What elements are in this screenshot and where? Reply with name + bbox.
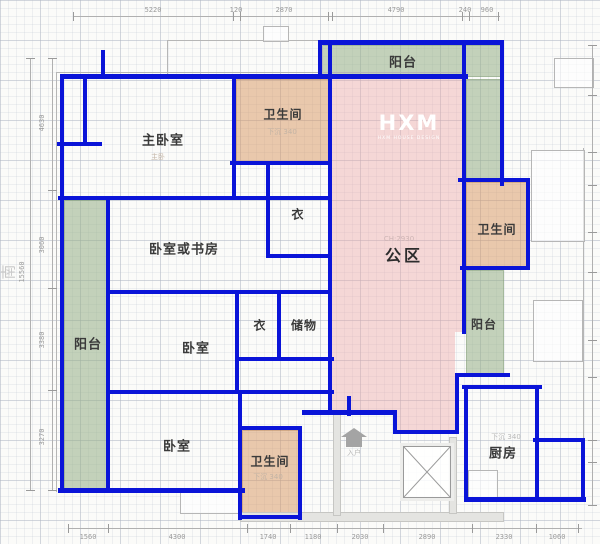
entry-house-icon <box>341 428 367 447</box>
dim-label-left: 4630 <box>38 115 46 132</box>
dimension-line-bottom <box>68 528 582 529</box>
wall-segment <box>462 44 466 334</box>
wall-outline <box>322 40 323 74</box>
dim-label-top: 240 <box>459 6 472 14</box>
dim-tick <box>588 185 597 186</box>
dim-tick <box>26 58 35 59</box>
dim-tick <box>68 524 69 533</box>
dim-label-left: 3270 <box>38 429 46 446</box>
dim-tick <box>383 524 384 533</box>
room-label-bedroom-middle: 卧室 <box>182 338 210 357</box>
wall-outline <box>167 40 323 41</box>
room-label-study: 卧室或书房 <box>149 239 219 258</box>
wall-segment <box>266 254 330 258</box>
room-label-balcony-left: 阳台 <box>74 334 102 353</box>
dim-tick <box>536 524 537 533</box>
dim-tick <box>588 272 597 273</box>
dim-label-left: 3060 <box>38 237 46 254</box>
wall-segment <box>455 373 459 434</box>
wall-segment <box>58 488 245 493</box>
wall-segment <box>298 426 302 520</box>
dim-label-left-total: 15560 <box>18 261 26 282</box>
dim-label-top: 2870 <box>276 6 293 14</box>
elevator-x-icon <box>404 447 450 497</box>
wall-segment <box>238 390 242 430</box>
wall-segment <box>500 40 504 186</box>
dim-label-left: 3380 <box>38 332 46 349</box>
dimension-line-left-total <box>30 58 31 490</box>
floor-plan-canvas: 主卧室 主卧 卫生间 下沉 340 衣 卧室或书房 阳台 卧室 衣 储物 卧室 … <box>0 0 600 544</box>
south-orientation-label: 南 <box>0 264 19 279</box>
dim-label-bottom: 1740 <box>260 533 277 541</box>
wall-segment <box>235 292 239 392</box>
wall-segment <box>106 196 110 492</box>
dim-label-bottom: 1060 <box>549 533 566 541</box>
wall-outline <box>167 40 168 74</box>
room-label-balcony-top: 阳台 <box>389 52 417 71</box>
wall-segment <box>106 390 334 394</box>
room-label-bath-bottom: 卫生间 <box>250 453 289 470</box>
room-sublabel-kitchen: 下沉 340 <box>491 432 521 442</box>
dim-label-top: 4790 <box>388 6 405 14</box>
dim-label-bottom: 2330 <box>496 533 513 541</box>
wall-segment <box>393 430 459 434</box>
room-label-public-area: 公区 <box>385 242 423 266</box>
watermark-logo: HXM HXM HOUSE DESIGN <box>378 113 440 141</box>
fixture-box <box>263 26 289 42</box>
wall-segment <box>60 74 468 79</box>
dim-tick <box>498 12 499 21</box>
dimension-line-right <box>592 45 593 505</box>
dim-tick <box>247 524 248 533</box>
dim-tick <box>328 12 329 21</box>
wall-segment <box>456 373 510 377</box>
wall-segment <box>58 196 332 200</box>
room-label-bath-top: 卫生间 <box>263 106 302 123</box>
wall-segment <box>460 266 530 270</box>
room-sublabel-bath-bottom: 下沉 340 <box>253 472 283 482</box>
wall-segment <box>533 438 585 442</box>
wall-segment <box>238 426 242 520</box>
wall-segment <box>458 178 530 182</box>
dim-label-bottom: 2890 <box>419 533 436 541</box>
wall-segment <box>320 40 504 45</box>
wall-segment <box>464 497 586 502</box>
room-label-kitchen: 厨房 <box>489 443 517 462</box>
wall-segment <box>526 178 530 270</box>
wall-outline <box>56 72 468 73</box>
side-room <box>554 58 594 88</box>
dim-tick <box>290 524 291 533</box>
dim-tick <box>588 95 597 96</box>
dim-tick <box>108 524 109 533</box>
dim-label-bottom: 2030 <box>352 533 369 541</box>
room-label-bath-right: 卫生间 <box>477 221 516 238</box>
wall-segment <box>235 357 334 361</box>
dim-tick <box>48 390 57 391</box>
wall-segment <box>535 387 539 500</box>
dim-tick <box>48 490 57 491</box>
room-sublabel-bath-top: 下沉 340 <box>267 127 297 137</box>
dim-tick <box>588 232 597 233</box>
dimension-line-left <box>52 58 53 490</box>
wall-segment <box>318 40 322 78</box>
dim-tick <box>588 152 597 153</box>
room-green-strip-right[interactable] <box>466 79 502 181</box>
room-label-master-bedroom: 主卧室 <box>142 130 184 149</box>
dim-label-bottom: 1560 <box>80 533 97 541</box>
wall-outline <box>56 72 57 492</box>
dim-tick <box>588 340 597 341</box>
dim-tick <box>472 524 473 533</box>
room-label-balcony-right: 阳台 <box>471 316 497 333</box>
wall-segment <box>232 76 236 200</box>
wall-segment <box>83 76 87 146</box>
dim-tick <box>337 524 338 533</box>
wall-segment <box>238 515 302 519</box>
dim-tick <box>332 12 333 21</box>
dim-tick <box>73 12 74 21</box>
room-public-area-tail[interactable] <box>397 410 455 430</box>
entry-label: 入户 <box>347 448 361 458</box>
dim-tick <box>588 377 597 378</box>
dim-tick <box>48 190 57 191</box>
wall-segment <box>347 396 351 416</box>
dim-tick <box>588 462 597 463</box>
wall-segment <box>238 426 302 430</box>
room-label-storage: 储物 <box>291 317 317 334</box>
side-room <box>533 300 583 362</box>
kitchen-fixture <box>468 470 498 498</box>
dim-tick <box>26 490 35 491</box>
dim-tick <box>588 45 597 46</box>
room-sublabel-master-bedroom: 主卧 <box>151 152 165 162</box>
room-label-closet-upper: 衣 <box>291 206 304 223</box>
wall-segment <box>462 385 542 389</box>
dim-tick <box>588 505 597 506</box>
elevator-shaft <box>403 446 451 498</box>
dim-tick <box>48 58 57 59</box>
dim-label-bottom: 1180 <box>305 533 322 541</box>
room-label-bedroom-bottom: 卧室 <box>163 436 191 455</box>
wall-segment <box>464 385 468 502</box>
dim-tick <box>48 288 57 289</box>
dim-tick <box>578 524 579 533</box>
dim-label-top: 5220 <box>145 6 162 14</box>
wall-segment <box>266 165 270 258</box>
wall-segment <box>581 438 585 502</box>
wall-segment <box>101 50 105 78</box>
dim-tick <box>588 440 597 441</box>
dim-label-bottom: 4300 <box>169 533 186 541</box>
dimension-line-top <box>73 16 500 17</box>
wall-segment <box>57 142 102 146</box>
room-label-closet-lower: 衣 <box>253 317 266 334</box>
wall-segment <box>106 290 332 294</box>
dim-label-top: 960 <box>481 6 494 14</box>
dim-label-top: 120 <box>230 6 243 14</box>
lobby-step <box>180 490 240 514</box>
wall-segment <box>60 74 64 492</box>
wall-segment <box>277 292 281 359</box>
wall-segment <box>230 161 332 165</box>
side-room <box>531 150 585 242</box>
corridor-wall <box>333 414 341 516</box>
